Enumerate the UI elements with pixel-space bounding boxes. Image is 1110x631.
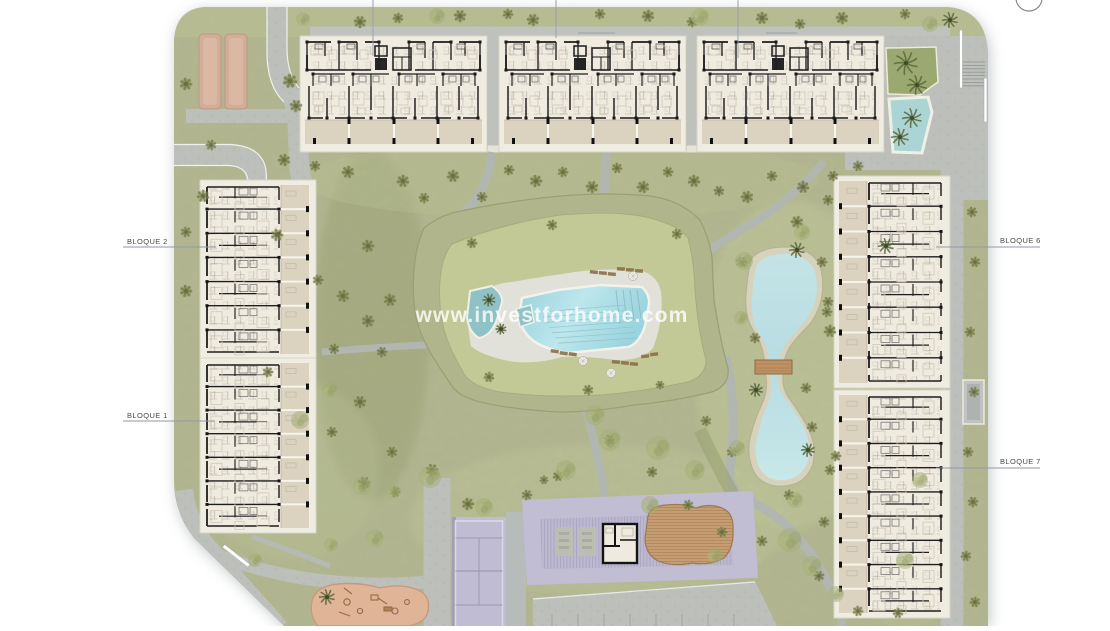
svg-text:BLOQUE 7: BLOQUE 7 xyxy=(1000,457,1041,466)
svg-text:BLOQUE 1: BLOQUE 1 xyxy=(127,411,168,420)
svg-text:BLOQUE 2: BLOQUE 2 xyxy=(127,237,168,246)
svg-text:www.investforhome.com: www.investforhome.com xyxy=(415,304,689,327)
svg-text:BLOQUE 6: BLOQUE 6 xyxy=(1000,236,1041,245)
